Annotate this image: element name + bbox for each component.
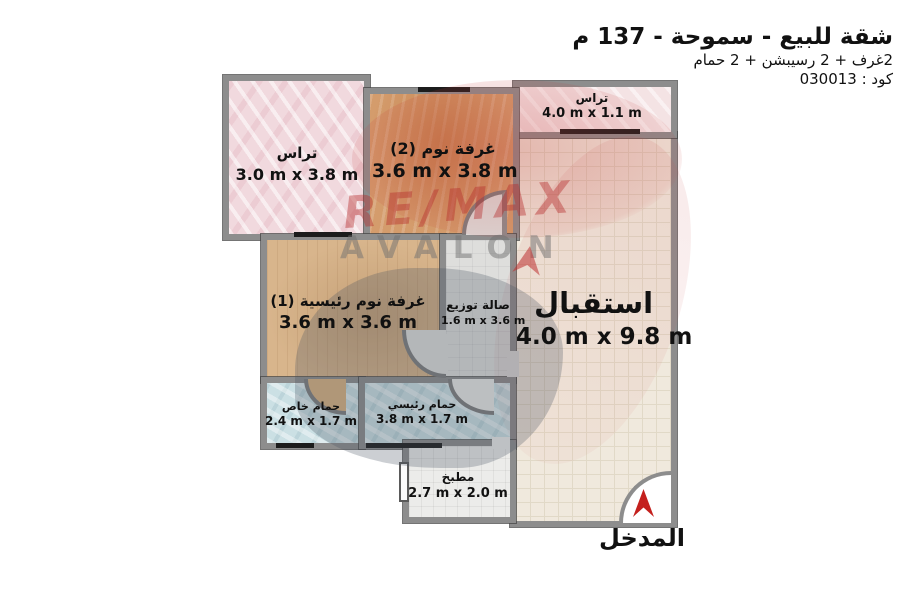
- label-reception: استقبال 4.0 m x 9.8 m: [516, 286, 671, 350]
- threshold-terrace-top: [560, 129, 640, 134]
- room-dims: 3.6 m x 3.8 m: [372, 160, 514, 182]
- room-dims: 3.6 m x 3.6 m: [263, 312, 433, 333]
- room-name: غرفة نوم (2): [372, 139, 514, 158]
- label-hall: صالة توزيع 1.6 m x 3.6 m: [441, 298, 515, 327]
- threshold-bedroom2-top: [418, 87, 470, 92]
- room-name: مطبخ: [406, 470, 510, 484]
- room-name: استقبال: [516, 286, 671, 320]
- threshold-bath-private: [276, 443, 314, 448]
- room-name: تراس: [517, 91, 667, 105]
- threshold-bath-main: [366, 443, 442, 448]
- listing-title: شقة للبيع - سموحة - 137 م: [572, 24, 893, 50]
- room-dims: 4.0 m x 1.1 m: [517, 106, 667, 121]
- room-dims: 4.0 m x 9.8 m: [516, 324, 671, 350]
- opening-hall-reception: [507, 351, 519, 377]
- listing-subtitle: 2غرف + 2 رسيبشن + 2 حمام: [572, 51, 893, 69]
- label-terrace-top: تراس 4.0 m x 1.1 m: [517, 91, 667, 121]
- room-dims: 1.6 m x 3.6 m: [441, 314, 515, 327]
- label-bath-main: حمام رئيسي 3.8 m x 1.7 m: [362, 398, 482, 426]
- threshold-terrace-left: [294, 232, 352, 237]
- label-bedroom-1: غرفة نوم رئيسية (1) 3.6 m x 3.6 m: [263, 292, 433, 333]
- opening-hall-kitchen: [492, 437, 510, 449]
- room-name: غرفة نوم رئيسية (1): [263, 292, 433, 310]
- room-dims: 2.7 m x 2.0 m: [406, 486, 510, 501]
- room-dims: 3.0 m x 3.8 m: [231, 165, 363, 184]
- room-dims: 2.4 m x 1.7 m: [263, 414, 359, 428]
- label-bath-private: حمام خاص 2.4 m x 1.7 m: [263, 400, 359, 428]
- label-kitchen: مطبخ 2.7 m x 2.0 m: [406, 470, 510, 501]
- room-name: تراس: [231, 144, 363, 162]
- label-terrace-left: تراس 3.0 m x 3.8 m: [231, 144, 363, 184]
- listing-header: شقة للبيع - سموحة - 137 م 2غرف + 2 رسيبش…: [572, 24, 893, 88]
- room-name: صالة توزيع: [441, 298, 515, 312]
- room-name: حمام رئيسي: [362, 398, 482, 411]
- label-bedroom-2: غرفة نوم (2) 3.6 m x 3.8 m: [372, 139, 514, 182]
- floor-plan-page: شقة للبيع - سموحة - 137 م 2غرف + 2 رسيبش…: [0, 0, 900, 599]
- room-name: حمام خاص: [263, 400, 359, 413]
- entrance-label: المدخل: [590, 524, 694, 552]
- room-dims: 3.8 m x 1.7 m: [362, 412, 482, 426]
